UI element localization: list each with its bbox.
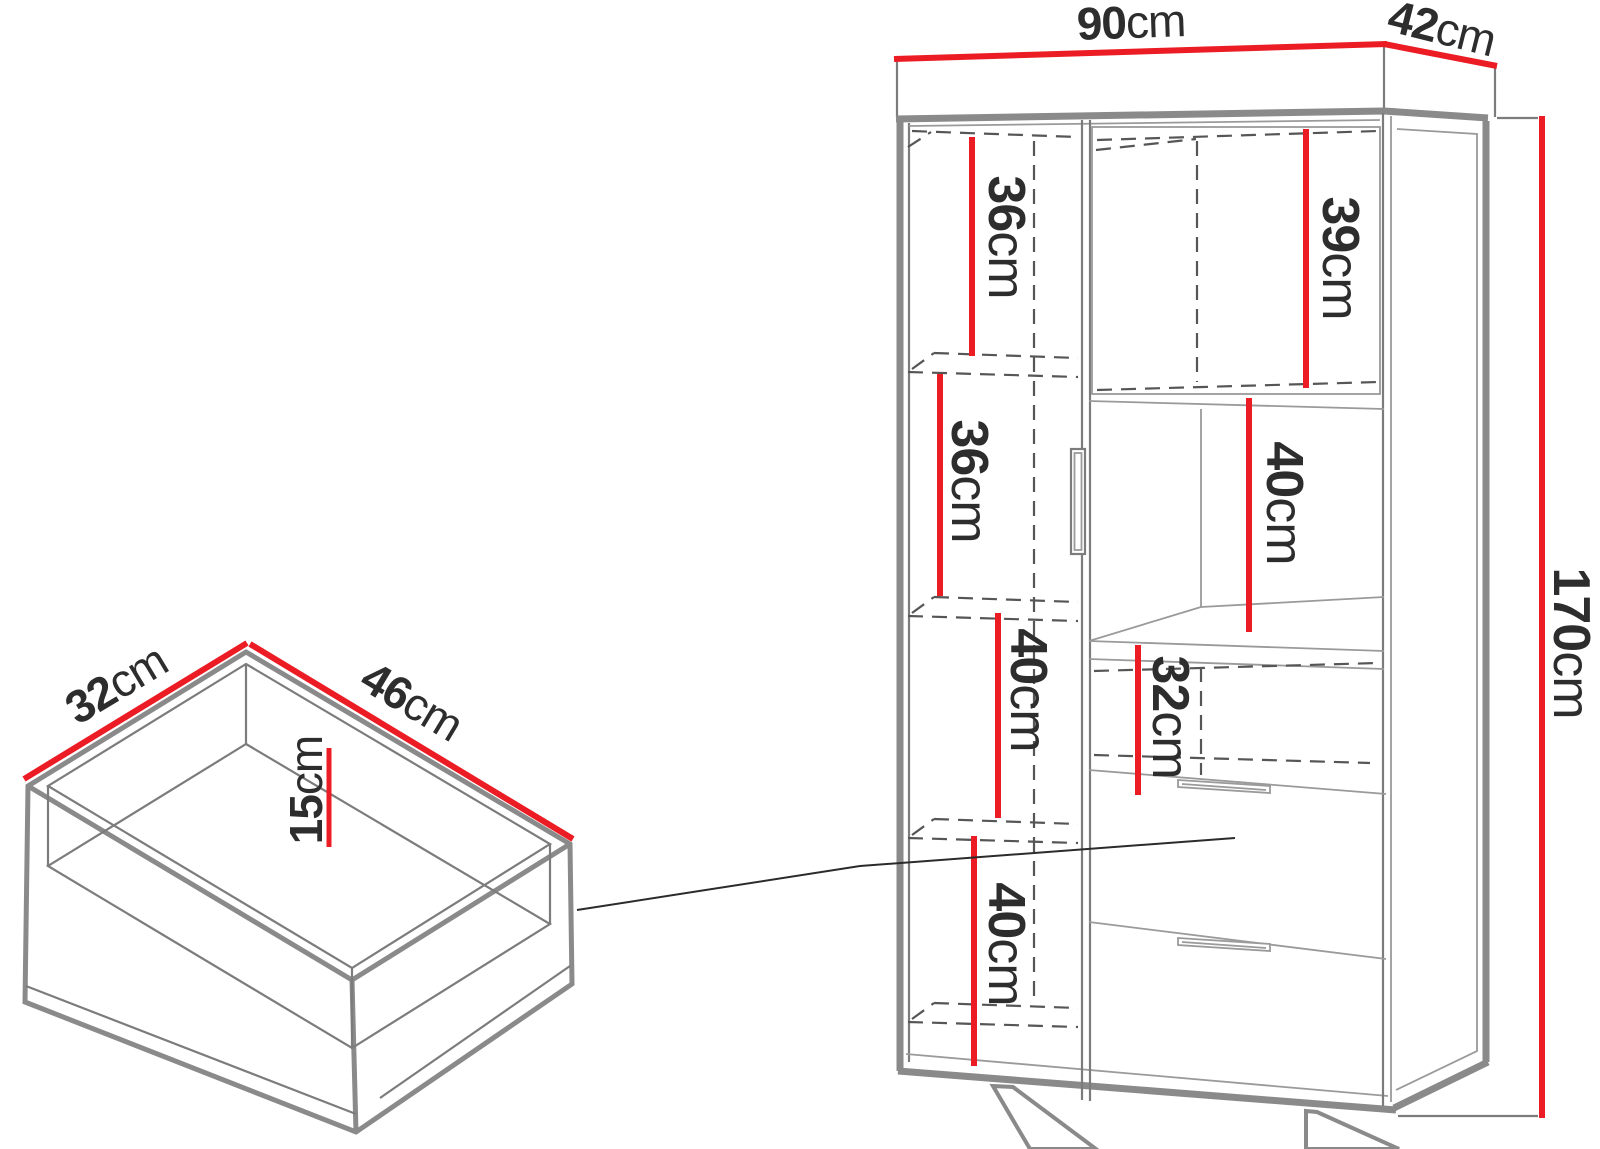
left-shelf-1-label: 36cm (980, 175, 1032, 298)
right-shelf-1-label: 39cm (1314, 196, 1366, 319)
open-niche (1089, 409, 1384, 669)
drawer-fronts (1089, 770, 1386, 959)
left-shelf-2-label: 36cm (943, 419, 995, 542)
connector-line (577, 838, 1235, 910)
right-leg (1306, 1111, 1399, 1149)
left-door-handle (1071, 449, 1085, 554)
furniture-dimension-diagram: 90cm 42cm 170cm 36cm 36cm 40cm 40cm 39cm… (0, 0, 1600, 1149)
line-art (0, 0, 1600, 1149)
right-shelf-2-label: 40cm (1258, 441, 1310, 564)
cabinet-width-label: 90cm (1076, 0, 1186, 47)
left-shelf-4-label: 40cm (980, 882, 1032, 1005)
side-panel-inner-edge (1396, 129, 1477, 1090)
left-leg (993, 1086, 1096, 1149)
right-shelf-3-label: 32cm (1144, 655, 1196, 778)
cabinet-height-label: 170cm (1545, 567, 1597, 718)
left-shelf-3-label: 40cm (1002, 628, 1054, 751)
drawer-height-label: 15cm (283, 736, 329, 845)
